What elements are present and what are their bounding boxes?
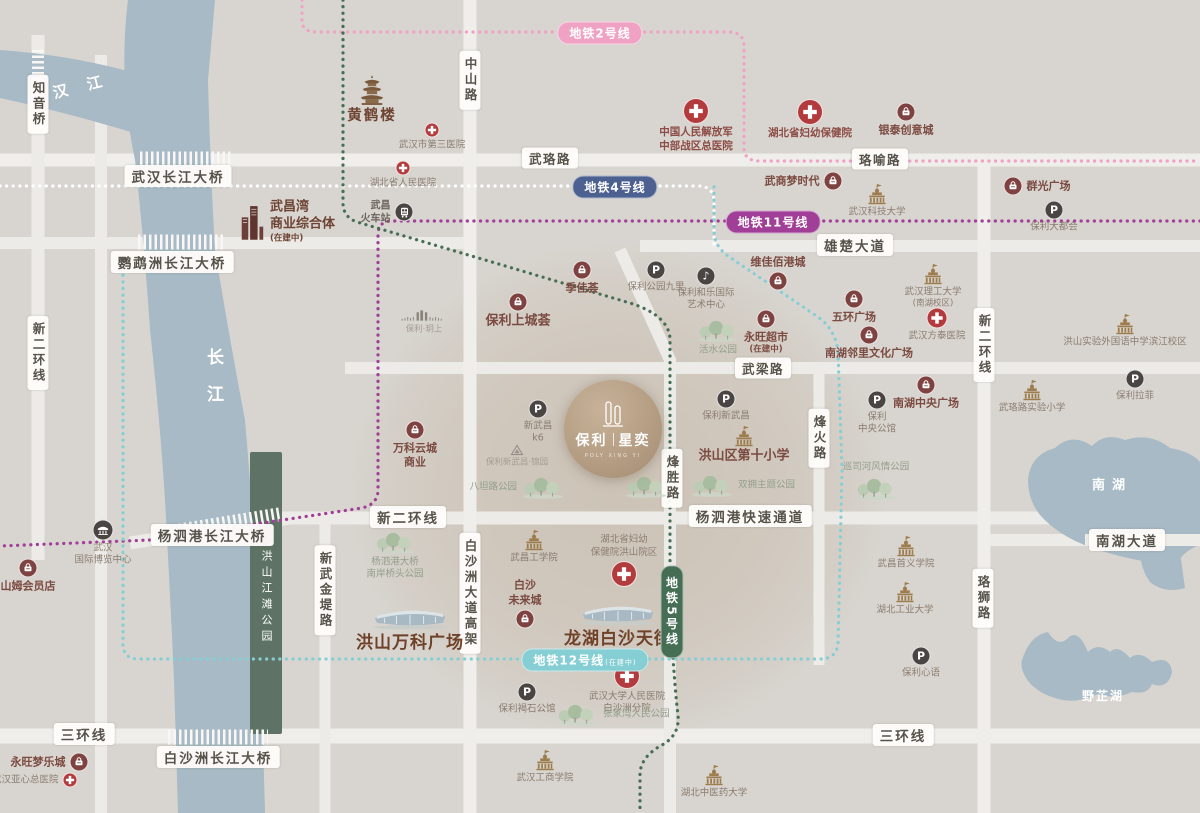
poi: 活水公园 bbox=[696, 318, 740, 343]
poi: 南湖邻里文化广场 bbox=[860, 326, 879, 345]
poi: 保利上城荟 bbox=[509, 293, 528, 312]
poi: 龙湖白沙天街 bbox=[579, 600, 657, 626]
road-label: 三环线 bbox=[54, 723, 115, 745]
park-trees-icon bbox=[696, 318, 740, 343]
school-icon bbox=[1113, 314, 1137, 335]
road-label: 珞狮路 bbox=[973, 569, 994, 628]
poi-label: 南湖邻里文化广场 bbox=[825, 347, 913, 361]
shopping-icon bbox=[897, 103, 916, 122]
poi: 武汉方泰医院 bbox=[927, 308, 948, 329]
shopping-icon bbox=[860, 326, 879, 345]
poi: 洪山区第十小学 bbox=[732, 426, 756, 447]
mini-logo-icon bbox=[396, 310, 452, 323]
school-icon bbox=[732, 426, 756, 447]
expo-center-icon bbox=[93, 520, 114, 541]
poi-label: 保利·玥上 bbox=[406, 325, 443, 336]
shopping-icon bbox=[509, 293, 528, 312]
poi-label: 中国人民解放军中部战区总医院 bbox=[659, 126, 733, 153]
poi-label: 张家湾人民公园 bbox=[603, 708, 670, 720]
poi: 山姆会员店 bbox=[19, 559, 38, 578]
poi: 保利·玥上 bbox=[396, 310, 452, 323]
poi: 永旺超市(在建中) bbox=[757, 310, 776, 329]
poi: P保利褐石公馆 bbox=[518, 683, 537, 702]
metro-pill-line11: 地铁11号线 bbox=[726, 211, 821, 234]
road-label: 新二环线 bbox=[28, 316, 49, 390]
shopping-icon bbox=[769, 272, 788, 291]
poi-label: 洪山实验外国语中学滨江校区 bbox=[1063, 337, 1187, 349]
poi: 洪山万科广场 bbox=[371, 604, 449, 630]
poi: P保利新武昌 bbox=[717, 390, 736, 409]
poi-label: 万科云城商业 bbox=[393, 442, 437, 471]
poi-label: 武汉理工大学(南湖校区) bbox=[904, 287, 961, 310]
poi-label: 保利大都会 bbox=[1030, 222, 1078, 234]
park-trees-icon bbox=[690, 473, 734, 498]
poi: 湖北省妇幼保健院洪山院区 bbox=[611, 561, 637, 587]
park-trees-icon bbox=[555, 702, 599, 727]
road-label: 雄楚大道 bbox=[817, 234, 893, 256]
poi-label: 洪山万科广场 bbox=[356, 632, 464, 654]
poi: 保利新武昌·锦园 bbox=[511, 445, 524, 456]
poi-label: 杨泗港大桥南岸桥头公园 bbox=[366, 557, 423, 582]
poly-project-icon: P bbox=[647, 261, 666, 280]
yellow-crane-tower-icon bbox=[358, 75, 386, 105]
school-icon bbox=[522, 530, 546, 551]
poi: 湖北工业大学 bbox=[893, 582, 917, 603]
poi: 八坦路公园 bbox=[521, 475, 565, 500]
school-icon bbox=[702, 765, 726, 786]
metro-pill-line2: 地铁2号线 bbox=[557, 22, 642, 45]
project-logo: 保利星奕 POLY XING YI bbox=[564, 380, 662, 478]
poi-label: 保利新武昌 bbox=[702, 411, 750, 423]
road-label: 新二环线 bbox=[370, 506, 446, 528]
poi-label: 武汉科技大学 bbox=[848, 207, 905, 219]
poi: 武商梦时代 bbox=[824, 172, 843, 191]
poi-label: 湖北省妇幼保健院 bbox=[768, 127, 852, 141]
poi-label: 武汉方泰医院 bbox=[908, 331, 965, 343]
poi-label: 白沙未来城 bbox=[509, 579, 542, 608]
road-label: 武汉长江大桥 bbox=[125, 165, 232, 187]
road-label: 杨泗港长江大桥 bbox=[151, 524, 274, 546]
poly-project-icon: P bbox=[1126, 370, 1145, 389]
poi-label: 八坦路公园 bbox=[469, 481, 517, 493]
poi: 银泰创意城 bbox=[897, 103, 916, 122]
poly-project-icon: P bbox=[912, 647, 931, 666]
poi-label: 保利褐石公馆 bbox=[498, 704, 555, 716]
poi-label: 武昌火车站 bbox=[361, 199, 391, 225]
location-map: 汉江 长江 南湖 野芷湖 洪山江滩公园 保利星奕 POLY XING YI 地铁… bbox=[0, 0, 1200, 813]
poi: 群光广场 bbox=[1004, 177, 1023, 196]
shopping-icon bbox=[406, 421, 425, 440]
poi-label: 保利心语 bbox=[902, 668, 940, 680]
poi: 巡司河风情公园 bbox=[854, 476, 898, 501]
hospital-icon bbox=[63, 773, 78, 788]
poi-label: 巡司河风情公园 bbox=[843, 461, 910, 473]
poi: 双拥主题公园 bbox=[690, 473, 734, 498]
poi-label: 武汉市第三医院 bbox=[399, 140, 466, 152]
poi-label: 保利拉菲 bbox=[1116, 391, 1154, 403]
hospital-icon bbox=[396, 161, 411, 176]
poi-label: 双拥主题公园 bbox=[738, 479, 795, 491]
poly-project-icon: P bbox=[518, 683, 537, 702]
shopping-icon bbox=[1004, 177, 1023, 196]
road-label: 三环线 bbox=[873, 724, 934, 746]
mall-building-icon bbox=[579, 600, 657, 626]
poi: ♪保利和乐国际艺术中心 bbox=[697, 267, 716, 286]
poi-label: 武昌工学院 bbox=[510, 553, 558, 565]
poi-label: 保利中央公馆 bbox=[858, 412, 896, 437]
poly-project-icon: P bbox=[1045, 201, 1064, 220]
road-label: 武梁路 bbox=[735, 358, 791, 379]
poi-label: 武珞路实验小学 bbox=[999, 403, 1066, 415]
poi: P保利大都会 bbox=[1045, 201, 1064, 220]
poi-label: 黄鹤楼 bbox=[347, 107, 397, 126]
poi: 武昌湾商业综合体(在建中) bbox=[238, 204, 266, 240]
train-station-icon bbox=[395, 203, 414, 222]
poi-label: 永旺超市(在建中) bbox=[744, 331, 788, 356]
school-icon bbox=[894, 536, 918, 557]
shopping-icon bbox=[573, 261, 592, 280]
poi-label: 永旺梦乐城 bbox=[11, 755, 66, 769]
poi-label: 维佳佰港城 bbox=[751, 255, 806, 269]
poi: 武昌工学院 bbox=[522, 530, 546, 551]
poi: 湖北中医药大学 bbox=[702, 765, 726, 786]
poly-project-icon: P bbox=[868, 391, 887, 410]
project-caption: POLY XING YI bbox=[585, 453, 641, 459]
hospital-icon bbox=[683, 98, 709, 124]
road-label: 新二环线 bbox=[974, 308, 995, 382]
poi-label: 湖北中医药大学 bbox=[681, 788, 748, 800]
poi: 洪山实验外国语中学滨江校区 bbox=[1113, 314, 1137, 335]
road-label: 武珞路 bbox=[522, 148, 578, 169]
road-label: 知音桥 bbox=[28, 75, 49, 134]
poi-label: 保利上城荟 bbox=[485, 314, 550, 331]
road-label: 鹦鹉洲长江大桥 bbox=[111, 251, 234, 273]
poi: 南湖中央广场 bbox=[917, 376, 936, 395]
poi-label: 保利和乐国际艺术中心 bbox=[677, 288, 734, 313]
hospital-icon bbox=[797, 99, 823, 125]
hospital-icon bbox=[611, 561, 637, 587]
shopping-icon bbox=[516, 610, 535, 629]
road-label: 南湖大道 bbox=[1089, 529, 1165, 551]
park-trees-icon bbox=[854, 476, 898, 501]
poi: 武汉工商学院 bbox=[533, 750, 557, 771]
buildings-icon bbox=[238, 204, 266, 240]
poi: P保利心语 bbox=[912, 647, 931, 666]
poi: P保利拉菲 bbox=[1126, 370, 1145, 389]
poi-label: 湖北省妇幼保健院洪山院区 bbox=[591, 534, 658, 559]
poi-label: 新武昌k6 bbox=[524, 421, 553, 446]
poi-label: 武昌湾商业综合体(在建中) bbox=[270, 200, 335, 245]
school-icon bbox=[893, 582, 917, 603]
poi: 武汉亚心总医院 bbox=[63, 773, 78, 788]
park-trees-icon bbox=[521, 475, 565, 500]
poi: 白沙未来城 bbox=[516, 610, 535, 629]
poi: 湖北省妇幼保健院 bbox=[797, 99, 823, 125]
school-icon bbox=[533, 750, 557, 771]
poi-label: 活水公园 bbox=[699, 345, 737, 357]
poi-label: 武汉国际博览中心 bbox=[74, 543, 131, 568]
poi: 武汉市第三医院 bbox=[425, 123, 440, 138]
road-label: 杨泗港快速通道 bbox=[689, 505, 812, 527]
hospital-icon bbox=[927, 308, 948, 329]
poi: P新武昌k6 bbox=[529, 400, 548, 419]
poi-label: 保利新武昌·锦园 bbox=[486, 458, 548, 469]
shopping-icon bbox=[845, 290, 864, 309]
poi: 武珞路实验小学 bbox=[1020, 380, 1044, 401]
shopping-icon bbox=[824, 172, 843, 191]
poi-label: 武昌首义学院 bbox=[877, 559, 934, 571]
poi-label: 武汉工商学院 bbox=[516, 773, 573, 785]
school-icon bbox=[865, 184, 889, 205]
shopping-icon bbox=[757, 310, 776, 329]
project-name: 保利星奕 bbox=[576, 430, 651, 450]
poly-project-icon: P bbox=[717, 390, 736, 409]
poi: 永旺梦乐城 bbox=[70, 753, 89, 772]
poi: 五环广场 bbox=[845, 290, 864, 309]
poi: 武汉国际博览中心 bbox=[93, 520, 114, 541]
poi-label: 武商梦时代 bbox=[765, 174, 820, 188]
poi-label: 季佳荟 bbox=[566, 282, 599, 296]
road-label: 新武金堤路 bbox=[315, 545, 336, 635]
poi-label: 洪山区第十小学 bbox=[698, 449, 789, 466]
metro-pill-line12: 地铁12号线(在建中) bbox=[521, 649, 648, 672]
poi: 武汉理工大学(南湖校区) bbox=[921, 264, 945, 285]
poly-project-icon: P bbox=[529, 400, 548, 419]
arts-center-icon: ♪ bbox=[697, 267, 716, 286]
poi-label: 保利公园九里 bbox=[627, 282, 684, 294]
poi: P保利中央公馆 bbox=[868, 391, 887, 410]
twin-tower-icon bbox=[602, 400, 624, 428]
road-label: 烽火路 bbox=[809, 409, 830, 468]
mall-building-icon bbox=[371, 604, 449, 630]
poi: 维佳佰港城 bbox=[769, 272, 788, 291]
shopping-icon bbox=[70, 753, 89, 772]
poi-label: 群光广场 bbox=[1027, 179, 1071, 193]
shopping-icon bbox=[917, 376, 936, 395]
poi: 武汉科技大学 bbox=[865, 184, 889, 205]
metro-pill-line5: 地铁5号线 bbox=[661, 565, 684, 658]
poi-label: 五环广场 bbox=[832, 311, 876, 325]
project-logo-circle: 保利星奕 POLY XING YI bbox=[564, 380, 662, 478]
project-triangle-icon bbox=[511, 445, 524, 456]
poi-label: 武汉亚心总医院 bbox=[0, 774, 59, 786]
metro-pill-line4: 地铁4号线 bbox=[572, 176, 657, 199]
poi-label: 银泰创意城 bbox=[879, 124, 934, 138]
poi-label: 龙湖白沙天街 bbox=[564, 628, 672, 650]
poi: 中国人民解放军中部战区总医院 bbox=[683, 98, 709, 124]
poi-label: 山姆会员店 bbox=[1, 580, 56, 594]
poi: 万科云城商业 bbox=[406, 421, 425, 440]
poi-label: 南湖中央广场 bbox=[893, 397, 959, 411]
poi-label: 湖北工业大学 bbox=[876, 605, 933, 617]
hospital-icon bbox=[425, 123, 440, 138]
school-icon bbox=[921, 264, 945, 285]
poi: P保利公园九里 bbox=[647, 261, 666, 280]
school-icon bbox=[1020, 380, 1044, 401]
road-label: 珞喻路 bbox=[852, 149, 908, 170]
poi: 杨泗港大桥南岸桥头公园 bbox=[373, 530, 417, 555]
road-label: 中山路 bbox=[460, 51, 481, 110]
poi: 武昌首义学院 bbox=[894, 536, 918, 557]
poi: 湖北省人民医院 bbox=[396, 161, 411, 176]
park-trees-icon bbox=[373, 530, 417, 555]
poi: 张家湾人民公园 bbox=[555, 702, 599, 727]
poi: 季佳荟 bbox=[573, 261, 592, 280]
shopping-icon bbox=[19, 559, 38, 578]
poi: 黄鹤楼 bbox=[358, 75, 386, 105]
poi: 武昌火车站 bbox=[395, 203, 414, 222]
poi-label: 湖北省人民医院 bbox=[370, 178, 437, 190]
road-label: 白沙洲长江大桥 bbox=[157, 746, 280, 768]
